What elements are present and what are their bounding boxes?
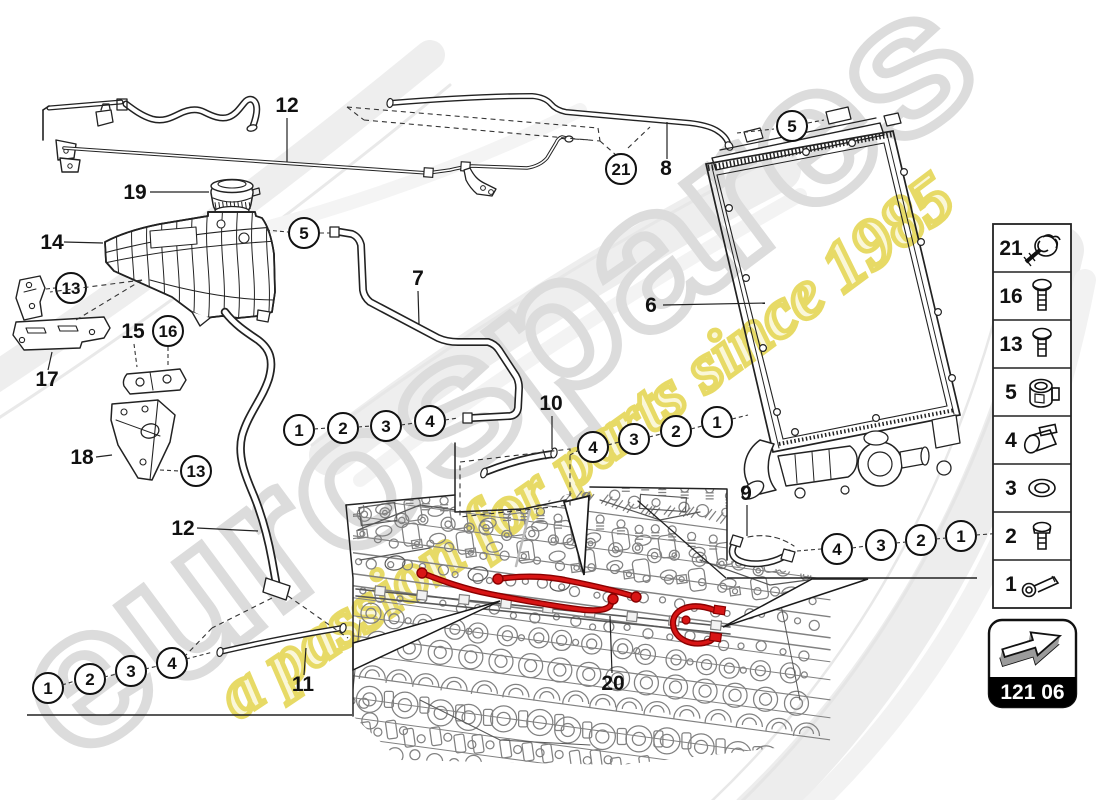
svg-text:3: 3: [1005, 477, 1017, 500]
svg-text:4: 4: [588, 438, 598, 457]
svg-text:2: 2: [671, 422, 680, 441]
svg-text:4: 4: [1005, 429, 1017, 452]
svg-text:9: 9: [740, 482, 752, 505]
svg-text:121 06: 121 06: [1000, 681, 1064, 704]
svg-text:3: 3: [629, 430, 638, 449]
svg-text:16: 16: [999, 285, 1022, 308]
svg-text:5: 5: [787, 117, 796, 136]
svg-text:13: 13: [187, 462, 206, 481]
svg-text:7: 7: [412, 267, 424, 290]
svg-text:13: 13: [999, 333, 1022, 356]
svg-text:5: 5: [1005, 381, 1017, 404]
svg-text:19: 19: [123, 181, 146, 204]
svg-text:10: 10: [539, 392, 562, 415]
svg-text:12: 12: [171, 517, 194, 540]
svg-text:1: 1: [43, 679, 52, 698]
svg-text:1: 1: [712, 413, 721, 432]
svg-text:2: 2: [85, 670, 94, 689]
svg-text:11: 11: [292, 673, 315, 696]
svg-text:21: 21: [612, 160, 631, 179]
svg-text:14: 14: [40, 231, 64, 254]
svg-text:15: 15: [121, 320, 145, 343]
svg-text:3: 3: [876, 536, 885, 555]
svg-text:2: 2: [338, 419, 347, 438]
svg-text:17: 17: [35, 368, 58, 391]
svg-text:20: 20: [601, 672, 624, 695]
svg-text:6: 6: [645, 294, 657, 317]
svg-text:1: 1: [1005, 573, 1017, 596]
svg-text:4: 4: [167, 654, 177, 673]
svg-text:5: 5: [299, 224, 308, 243]
svg-text:3: 3: [126, 662, 135, 681]
svg-text:3: 3: [381, 417, 390, 436]
svg-text:16: 16: [159, 322, 178, 341]
svg-text:2: 2: [1005, 525, 1017, 548]
svg-text:12: 12: [275, 94, 298, 117]
svg-text:1: 1: [294, 421, 303, 440]
svg-text:18: 18: [70, 446, 94, 469]
svg-text:4: 4: [832, 540, 842, 559]
svg-text:4: 4: [425, 412, 435, 431]
svg-text:1: 1: [956, 527, 965, 546]
svg-text:8: 8: [660, 157, 672, 180]
svg-text:21: 21: [999, 237, 1023, 260]
svg-text:2: 2: [916, 531, 925, 550]
